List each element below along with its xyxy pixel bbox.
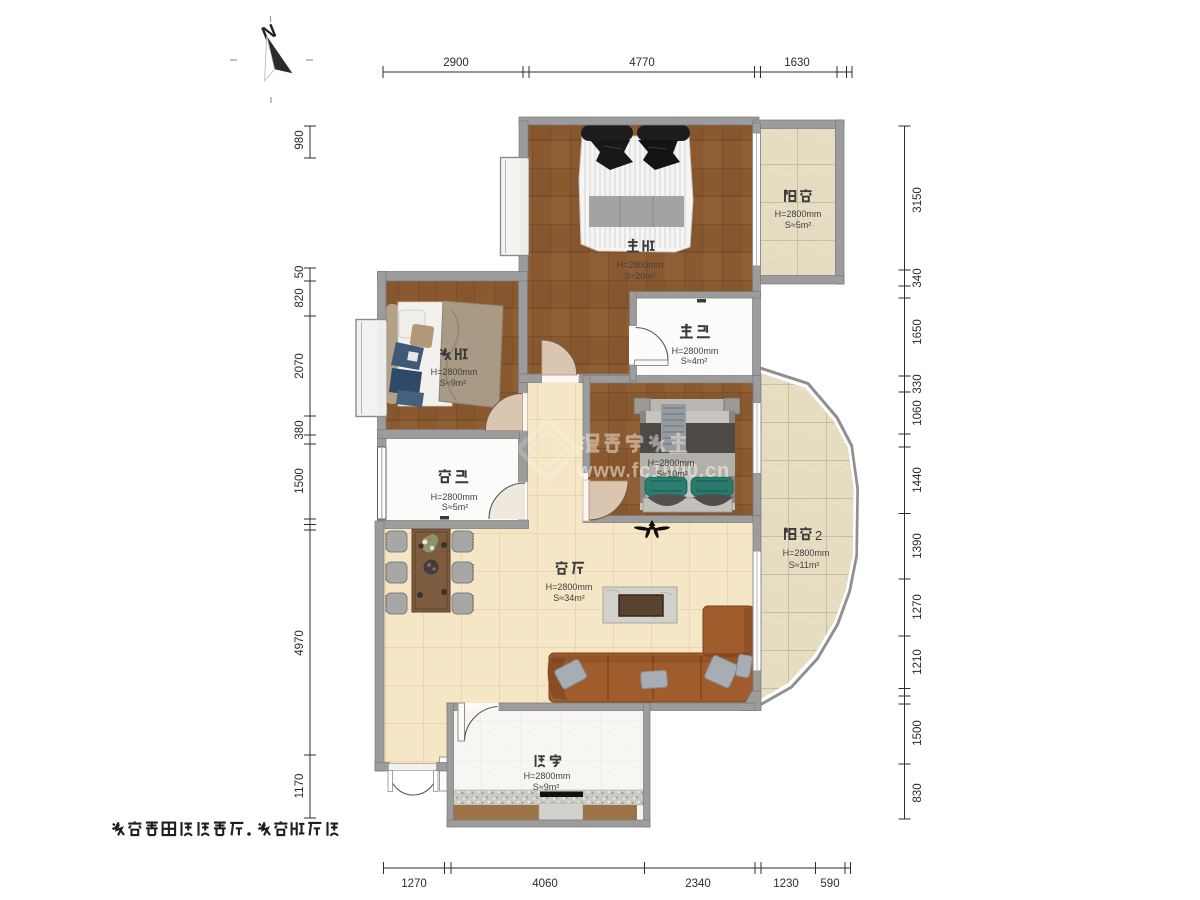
svg-text:S≈11m²: S≈11m² <box>789 560 820 570</box>
svg-text:H=2800mm: H=2800mm <box>672 346 719 356</box>
svg-text:H=2800mm: H=2800mm <box>546 582 593 592</box>
svg-text:1060: 1060 <box>912 400 924 426</box>
svg-text:590: 590 <box>820 878 839 890</box>
svg-text:S≈4m²: S≈4m² <box>681 356 707 366</box>
svg-text:980: 980 <box>294 130 306 149</box>
svg-text:H=2800mm: H=2800mm <box>783 548 830 558</box>
svg-text:S≈34m²: S≈34m² <box>553 593 584 603</box>
svg-text:H=2800mm: H=2800mm <box>431 367 478 377</box>
svg-text:H=2800mm: H=2800mm <box>617 260 664 270</box>
svg-text:2: 2 <box>815 528 822 543</box>
svg-text:1440: 1440 <box>912 467 924 493</box>
svg-text:1270: 1270 <box>912 594 924 620</box>
svg-text:S≈20m²: S≈20m² <box>624 271 655 281</box>
svg-text:1270: 1270 <box>401 878 427 890</box>
svg-text:820: 820 <box>294 288 306 307</box>
svg-text:2070: 2070 <box>294 353 306 379</box>
svg-text:H=2800mm: H=2800mm <box>524 771 571 781</box>
svg-text:1170: 1170 <box>294 774 306 799</box>
svg-text:50: 50 <box>294 266 306 279</box>
svg-text:1500: 1500 <box>294 468 306 494</box>
svg-text:1390: 1390 <box>912 533 924 559</box>
svg-text:S≈10m²: S≈10m² <box>656 469 687 479</box>
svg-text:S≈5m²: S≈5m² <box>442 502 468 512</box>
svg-text:1500: 1500 <box>912 720 924 746</box>
svg-text:3150: 3150 <box>912 187 924 213</box>
svg-text:1210: 1210 <box>912 649 924 675</box>
svg-text:1650: 1650 <box>912 319 924 345</box>
svg-text:2900: 2900 <box>443 57 469 69</box>
svg-text:380: 380 <box>294 420 306 439</box>
svg-text:4970: 4970 <box>294 630 306 656</box>
svg-text:H=2800mm: H=2800mm <box>775 209 822 219</box>
svg-text:1230: 1230 <box>773 878 799 890</box>
svg-text:4770: 4770 <box>629 57 655 69</box>
svg-text:2340: 2340 <box>685 878 711 890</box>
svg-text:S≈5m²: S≈5m² <box>785 220 811 230</box>
svg-text:4060: 4060 <box>532 878 558 890</box>
svg-text:1630: 1630 <box>784 57 810 69</box>
svg-text:H=2800mm: H=2800mm <box>648 458 695 468</box>
svg-text:H=2800mm: H=2800mm <box>431 492 478 502</box>
svg-text:830: 830 <box>912 783 924 802</box>
svg-text:S≈9m²: S≈9m² <box>440 378 466 388</box>
svg-text:S≈9m²: S≈9m² <box>533 782 559 792</box>
svg-text:340: 340 <box>912 268 924 287</box>
svg-text:330: 330 <box>912 374 924 393</box>
